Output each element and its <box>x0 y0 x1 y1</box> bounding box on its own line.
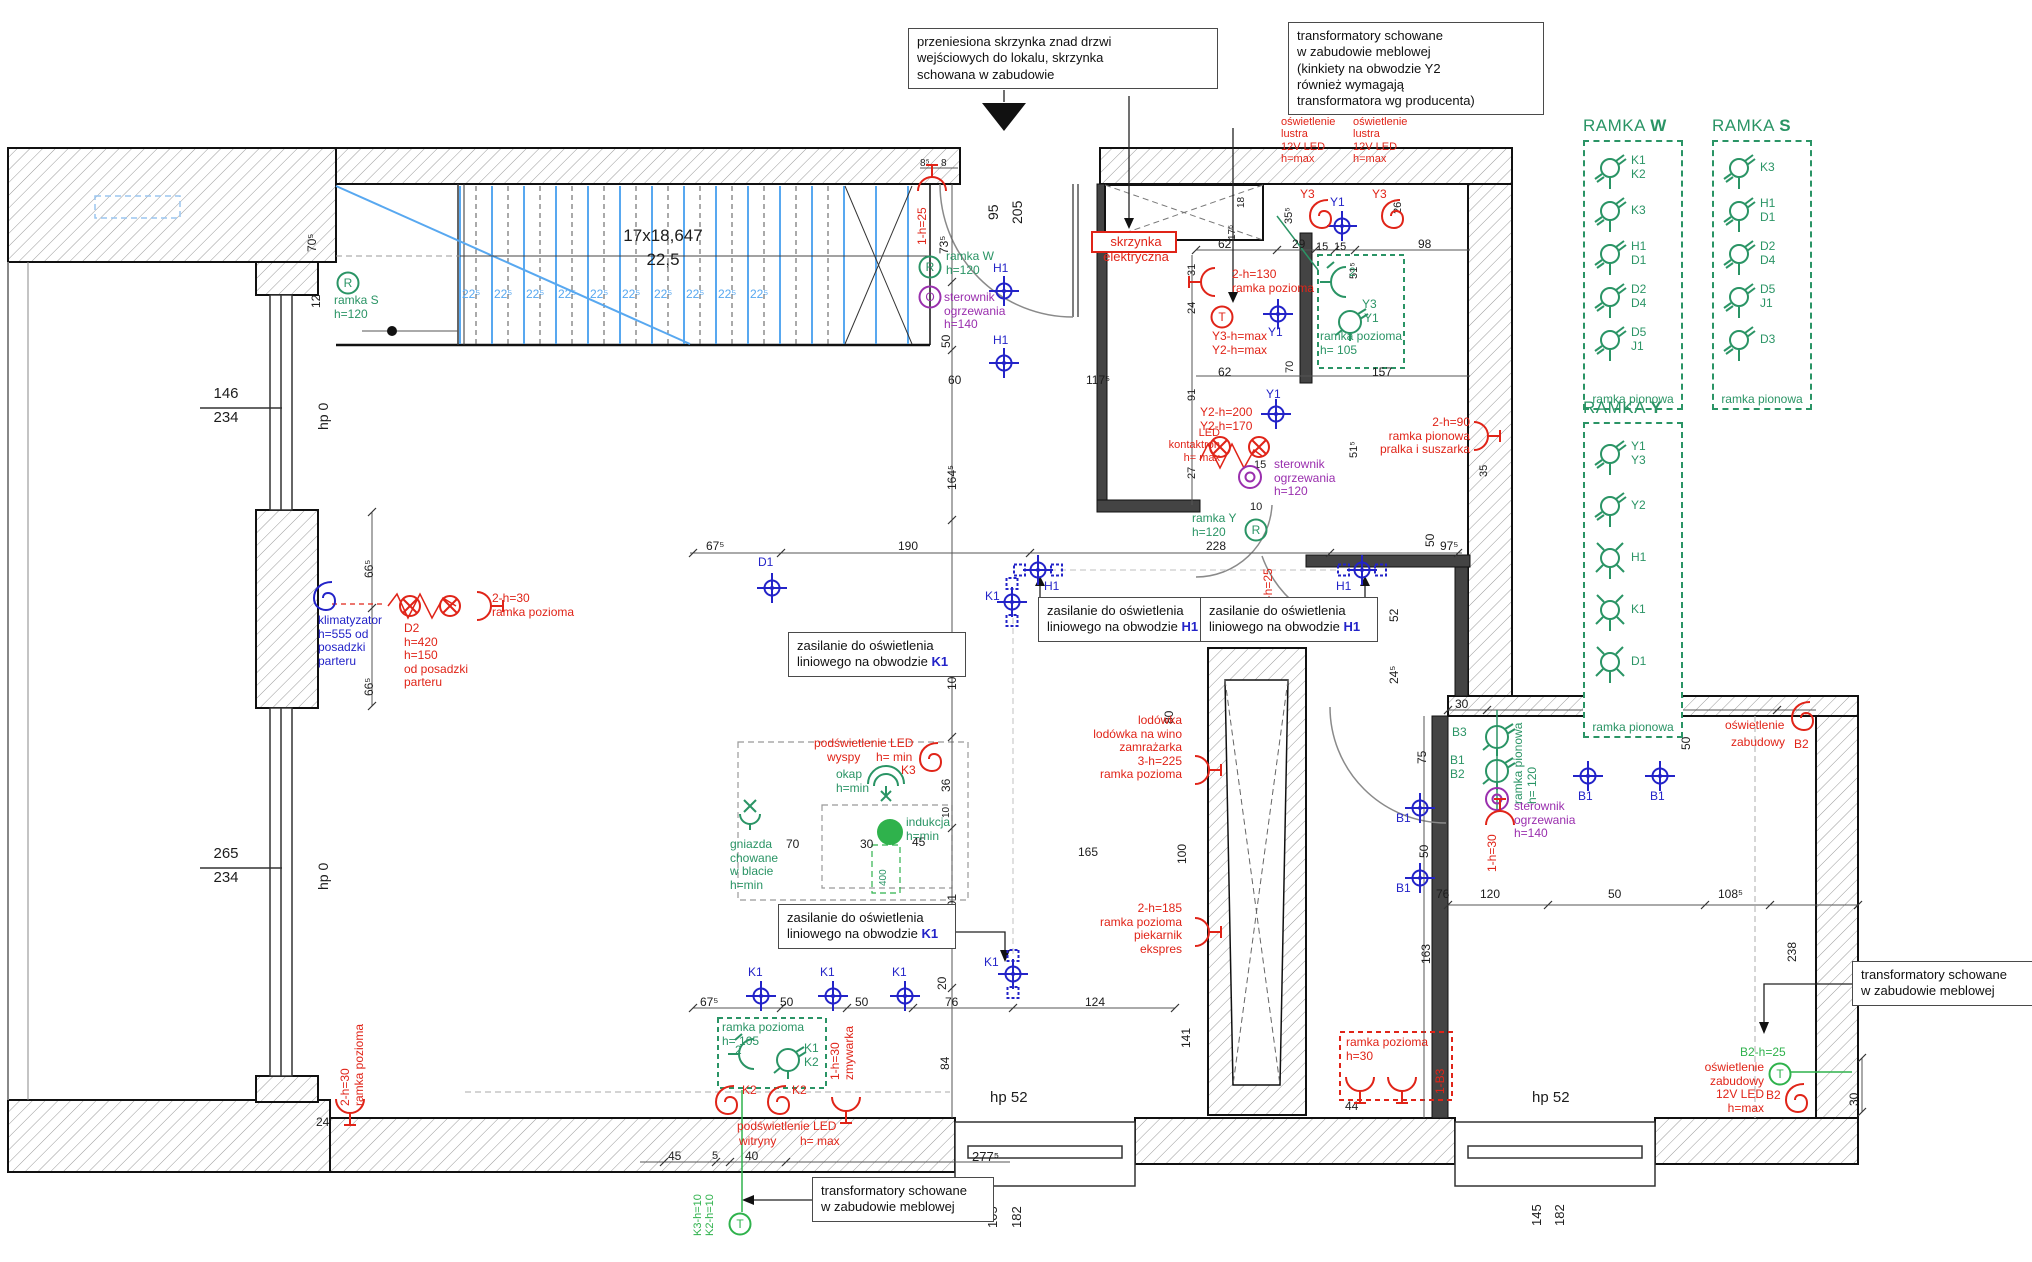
wall-light-k2-icon <box>768 1086 789 1114</box>
lamp-y2-icon <box>1249 437 1269 457</box>
switch-icon <box>1320 262 1346 297</box>
oven-frame-icon <box>1195 918 1221 946</box>
frame-s-marker-icon: R <box>338 273 359 294</box>
junction-dot-icon <box>387 326 397 336</box>
frame-w-marker-icon: R <box>920 257 941 278</box>
mirror-light-y3-icon <box>1310 200 1331 228</box>
svg-text:R: R <box>344 276 353 290</box>
floor-plan: 17x18,64722,570⁵12146234hp 0265234hp 066… <box>0 0 2032 1262</box>
air-conditioner-icon <box>314 582 335 610</box>
transformer-icon: T <box>730 1214 751 1235</box>
light-point-k1-icon <box>890 981 920 1011</box>
transformer-icon: T <box>1770 1064 1791 1085</box>
frame-horizontal-icon <box>1189 268 1215 296</box>
switch-b1-b2-icon <box>1483 758 1515 790</box>
svg-text:T: T <box>1218 310 1226 324</box>
light-point-h1-icon <box>989 276 1019 306</box>
frame-horizontal-icon <box>1346 1077 1374 1103</box>
transformer-icon: T <box>1212 307 1233 328</box>
mirror-light-y3-icon <box>1382 200 1403 228</box>
socket-frame-icon <box>1336 309 1368 341</box>
washer-dryer-frame-icon <box>1474 422 1500 450</box>
light-point-b1-icon <box>1573 761 1603 791</box>
cooker-hood-icon <box>868 766 904 801</box>
svg-text:T: T <box>1776 1067 1784 1081</box>
lamp-d2-icon <box>400 596 420 616</box>
dishwasher-outlet-icon <box>832 1097 860 1123</box>
svg-text:R: R <box>1252 523 1261 537</box>
frame-horizontal-icon <box>1388 1077 1416 1103</box>
frame-icon <box>918 165 946 191</box>
svg-text:T: T <box>736 1217 744 1231</box>
frame-horizontal-icon <box>477 592 503 620</box>
socket-frame-icon <box>774 1047 806 1079</box>
countertop-socket-icon <box>740 800 760 830</box>
linear-light-h1-icon <box>1014 555 1062 585</box>
island-led-icon <box>920 743 941 771</box>
switch-b3-icon <box>1483 724 1515 756</box>
frame-horizontal-icon <box>336 1099 364 1125</box>
linear-light-k1-icon <box>997 578 1027 626</box>
lamp-d2-icon <box>440 596 460 616</box>
light-point-b1-icon <box>1405 793 1435 823</box>
svg-text:O: O <box>925 290 934 304</box>
linear-light-k1-icon <box>998 950 1028 998</box>
fridge-frame-icon <box>1195 756 1221 784</box>
frame-y-marker-icon: R <box>1246 520 1267 541</box>
light-point-y1-icon <box>1263 299 1293 329</box>
heating-controller-icon <box>1239 466 1261 488</box>
light-point-b1-icon <box>1645 761 1675 791</box>
cabinet-light-b2-icon <box>1792 702 1813 730</box>
svg-text:R: R <box>926 260 935 274</box>
cabinet-light-b2-icon <box>1786 1084 1807 1112</box>
light-point-y1-icon <box>1261 399 1291 429</box>
light-point-h1-icon <box>989 348 1019 378</box>
frame-icon <box>1486 799 1514 825</box>
symbols-layer: RORRTTT <box>0 0 2032 1262</box>
light-point-y1-icon <box>1327 211 1357 241</box>
light-point-d1-icon <box>757 573 787 603</box>
linear-light-h1-icon <box>1338 555 1386 585</box>
light-point-b1-icon <box>1405 863 1435 893</box>
lamp-y2-icon <box>1210 437 1230 457</box>
light-point-k1-icon <box>818 981 848 1011</box>
wall-light-k2-icon <box>716 1086 737 1114</box>
heating-controller-icon: O <box>920 287 941 308</box>
switch-icon <box>728 1034 754 1069</box>
light-point-k1-icon <box>746 981 776 1011</box>
induction-hob-icon <box>877 819 903 845</box>
